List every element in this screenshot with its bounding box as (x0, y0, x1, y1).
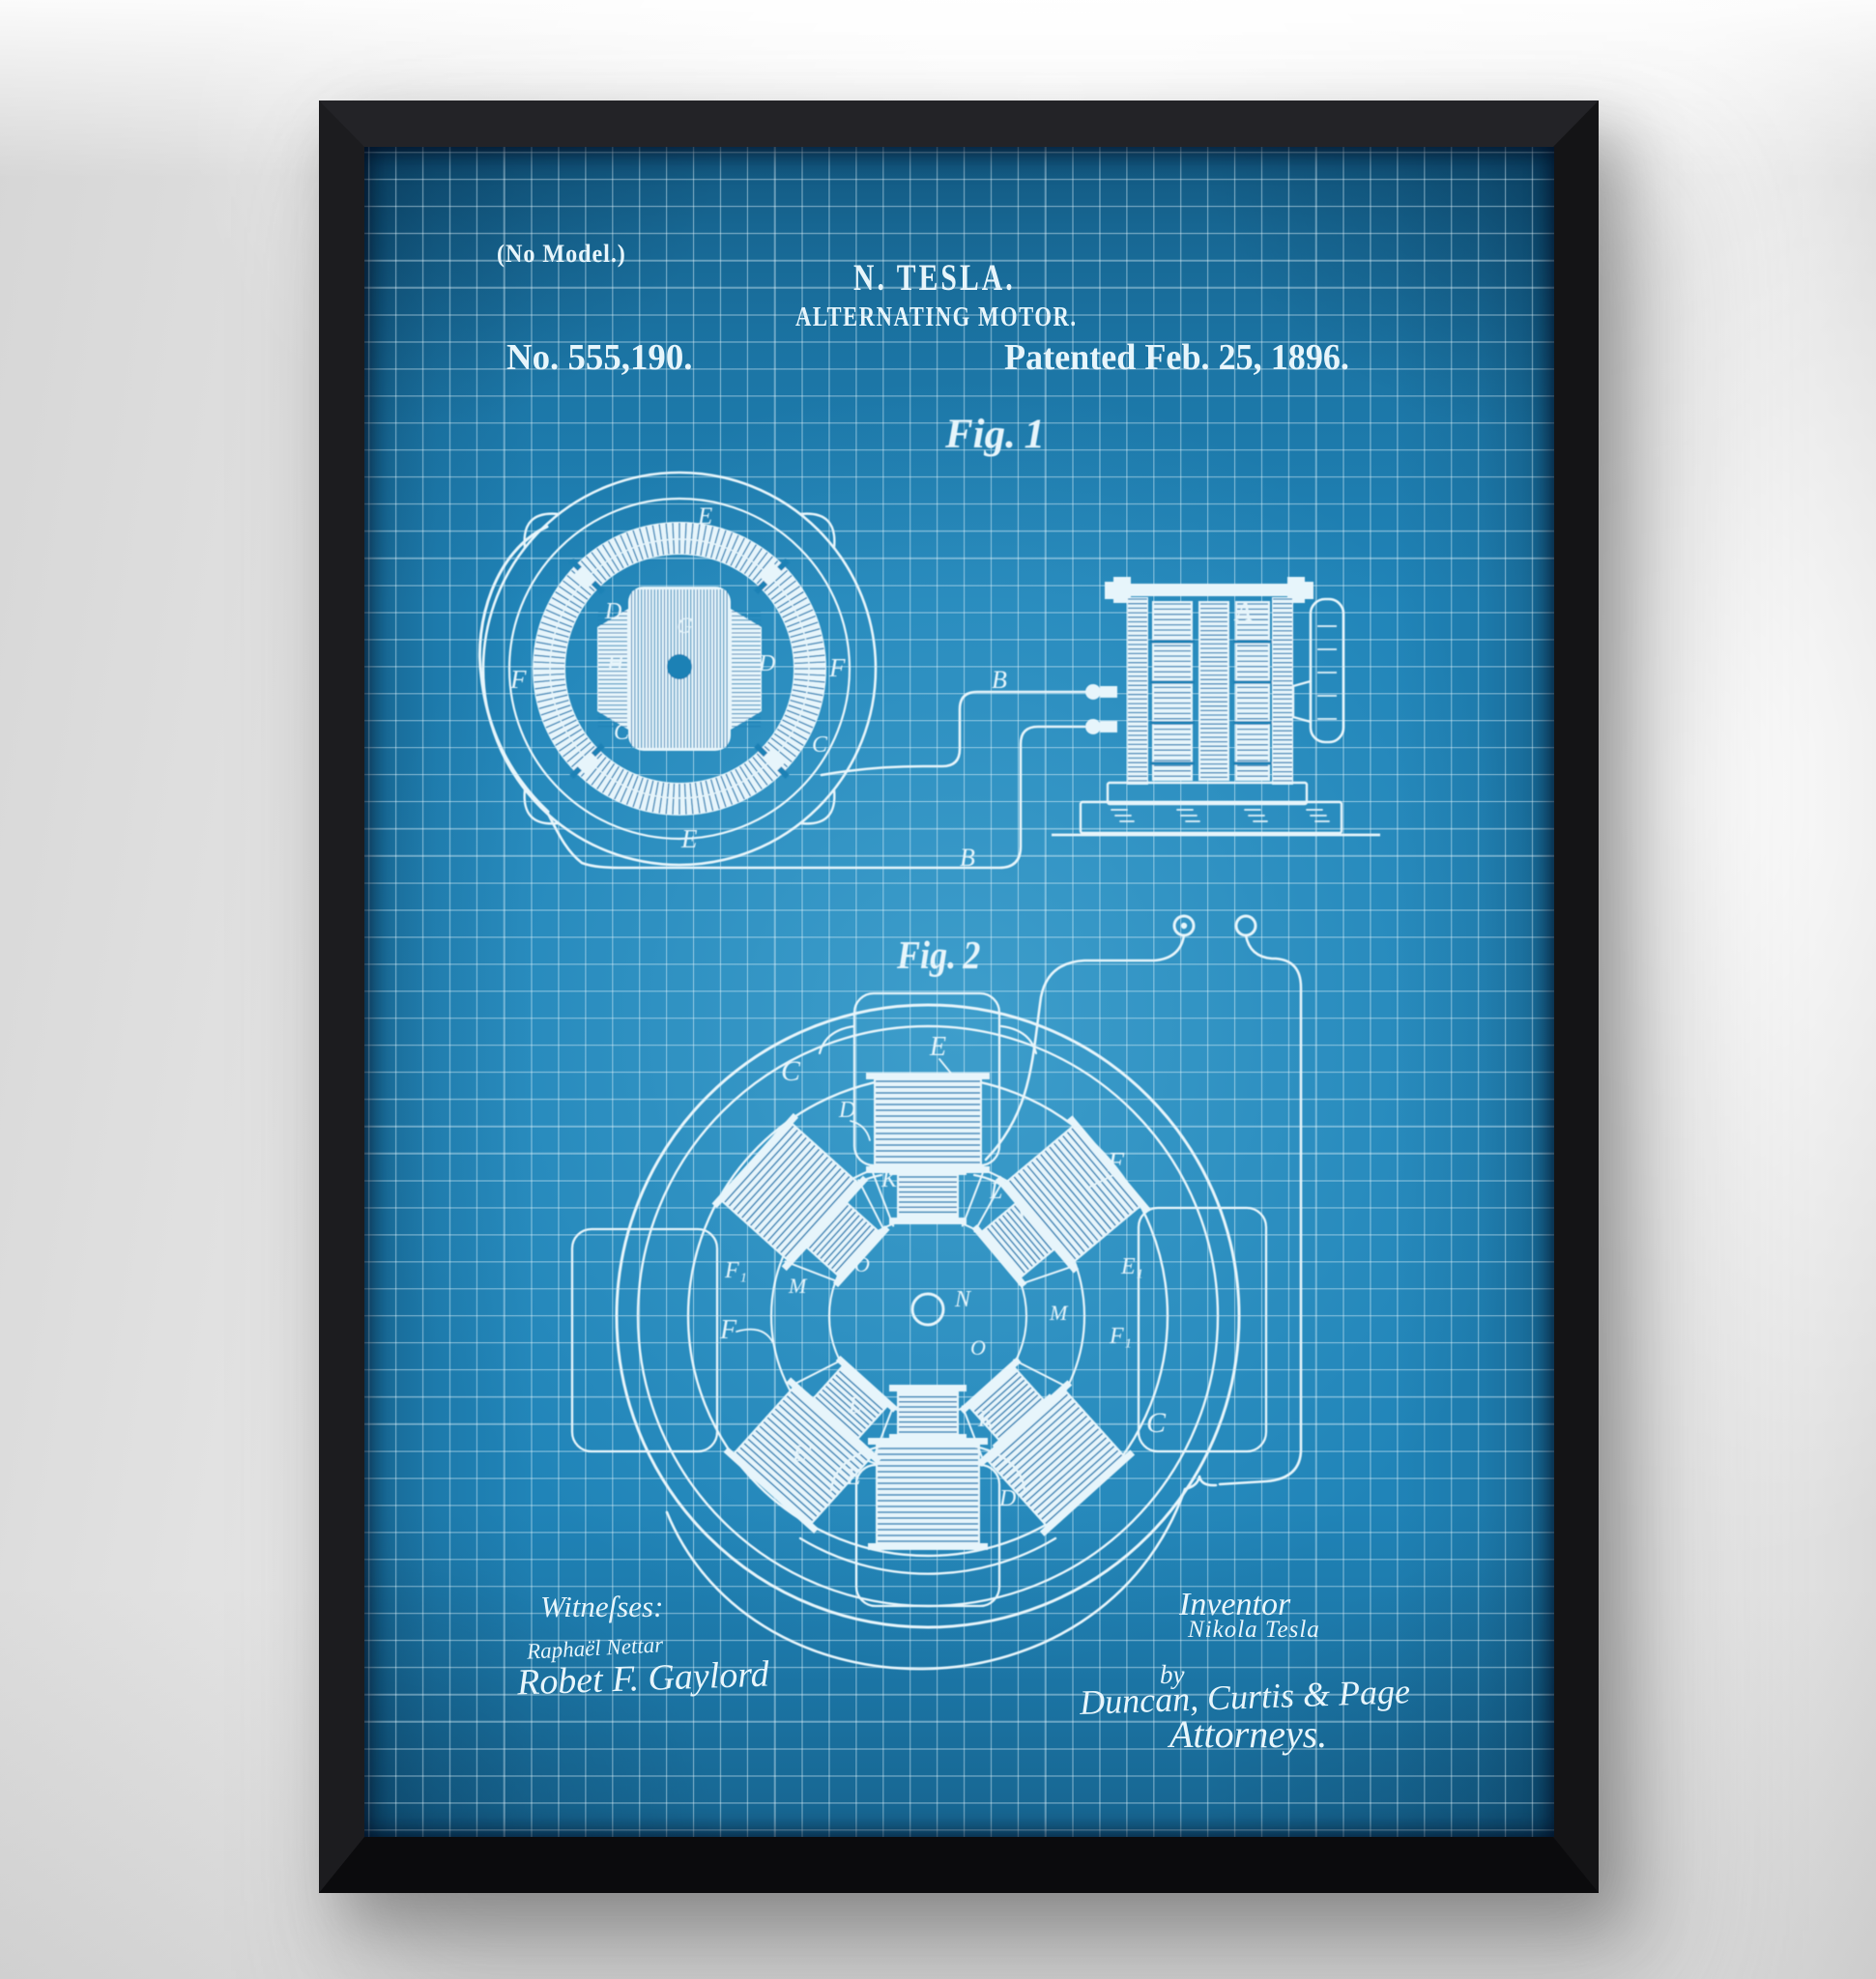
svg-text:G: G (677, 614, 693, 638)
svg-text:F₁: F₁ (724, 1258, 747, 1283)
svg-text:F: F (828, 653, 846, 682)
svg-text:E: E (846, 1465, 861, 1490)
svg-text:L: L (848, 1393, 861, 1419)
svg-text:N: N (954, 1287, 972, 1312)
svg-text:C: C (781, 1055, 801, 1087)
svg-text:K: K (880, 1167, 899, 1192)
svg-text:K: K (977, 1407, 996, 1432)
svg-text:H: H (606, 651, 625, 676)
svg-text:E': E' (792, 1442, 813, 1467)
svg-text:O: O (970, 1335, 986, 1360)
svg-text:C: C (812, 732, 828, 758)
svg-text:D: D (998, 1486, 1016, 1511)
svg-text:E: E (680, 824, 698, 853)
svg-text:D: D (758, 651, 775, 676)
svg-text:D: D (838, 1098, 855, 1123)
svg-text:C: C (614, 720, 630, 745)
svg-text:E₁: E₁ (1120, 1254, 1143, 1279)
svg-text:F: F (509, 665, 527, 694)
svg-text:D: D (604, 599, 621, 624)
svg-text:Fig. 2: Fig. 2 (896, 934, 980, 978)
svg-text:C: C (1146, 1407, 1167, 1439)
svg-text:M: M (788, 1274, 808, 1298)
svg-text:A: A (1233, 597, 1253, 627)
svg-text:O: O (854, 1252, 870, 1276)
svg-text:B: B (960, 844, 975, 872)
svg-text:E: E (697, 503, 712, 530)
svg-text:E: E (929, 1032, 946, 1062)
svg-text:F₁: F₁ (1109, 1324, 1132, 1349)
svg-text:B: B (992, 666, 1007, 694)
svg-text:F: F (1107, 1148, 1125, 1178)
svg-text:Fig. 1: Fig. 1 (944, 412, 1045, 457)
svg-text:L: L (989, 1179, 1002, 1204)
svg-text:F: F (719, 1315, 737, 1345)
svg-text:M: M (1049, 1301, 1069, 1325)
